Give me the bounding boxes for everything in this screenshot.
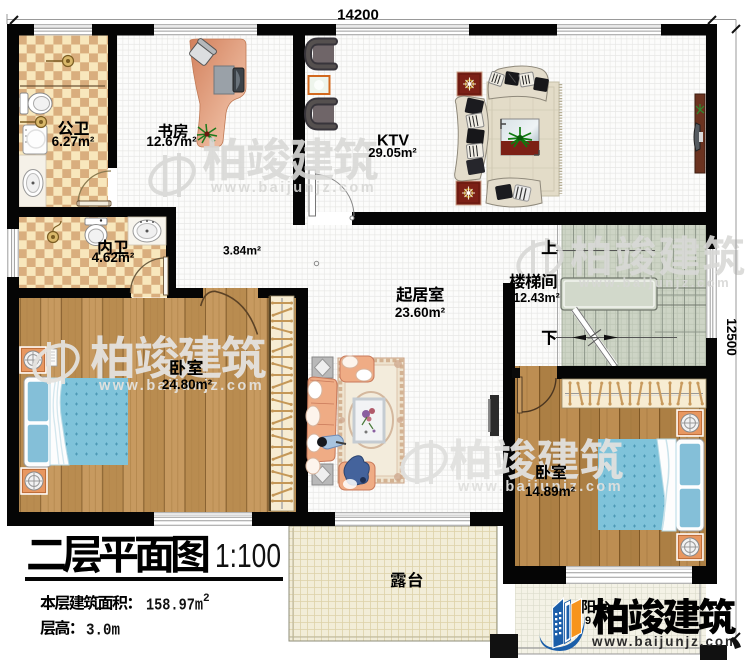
svg-text:6.27m²: 6.27m² [52, 134, 95, 149]
svg-text:1:100: 1:100 [215, 537, 281, 574]
svg-text:23.60m²: 23.60m² [395, 305, 446, 320]
svg-text:158.97m: 158.97m [146, 596, 203, 615]
svg-text:14.89m²: 14.89m² [525, 484, 576, 499]
svg-text:www.baijunjz.com: www.baijunjz.com [591, 634, 739, 649]
svg-text:2: 2 [203, 593, 210, 605]
svg-text:29.05m²: 29.05m² [368, 145, 417, 160]
svg-text:www.baijunjz.com: www.baijunjz.com [210, 180, 376, 196]
svg-text:12.67m²: 12.67m² [146, 134, 197, 149]
svg-text:3.0m: 3.0m [86, 621, 120, 640]
svg-text:9: 9 [585, 615, 591, 627]
svg-text:14200: 14200 [337, 7, 379, 24]
svg-text:12500: 12500 [724, 318, 739, 356]
svg-text:24.80m²: 24.80m² [162, 377, 213, 392]
svg-text:3.84m²: 3.84m² [223, 244, 261, 258]
svg-text:www.baijunjz.com: www.baijunjz.com [578, 275, 731, 290]
svg-text:4.62m²: 4.62m² [92, 250, 135, 265]
svg-text:12.43m²: 12.43m² [513, 291, 560, 305]
